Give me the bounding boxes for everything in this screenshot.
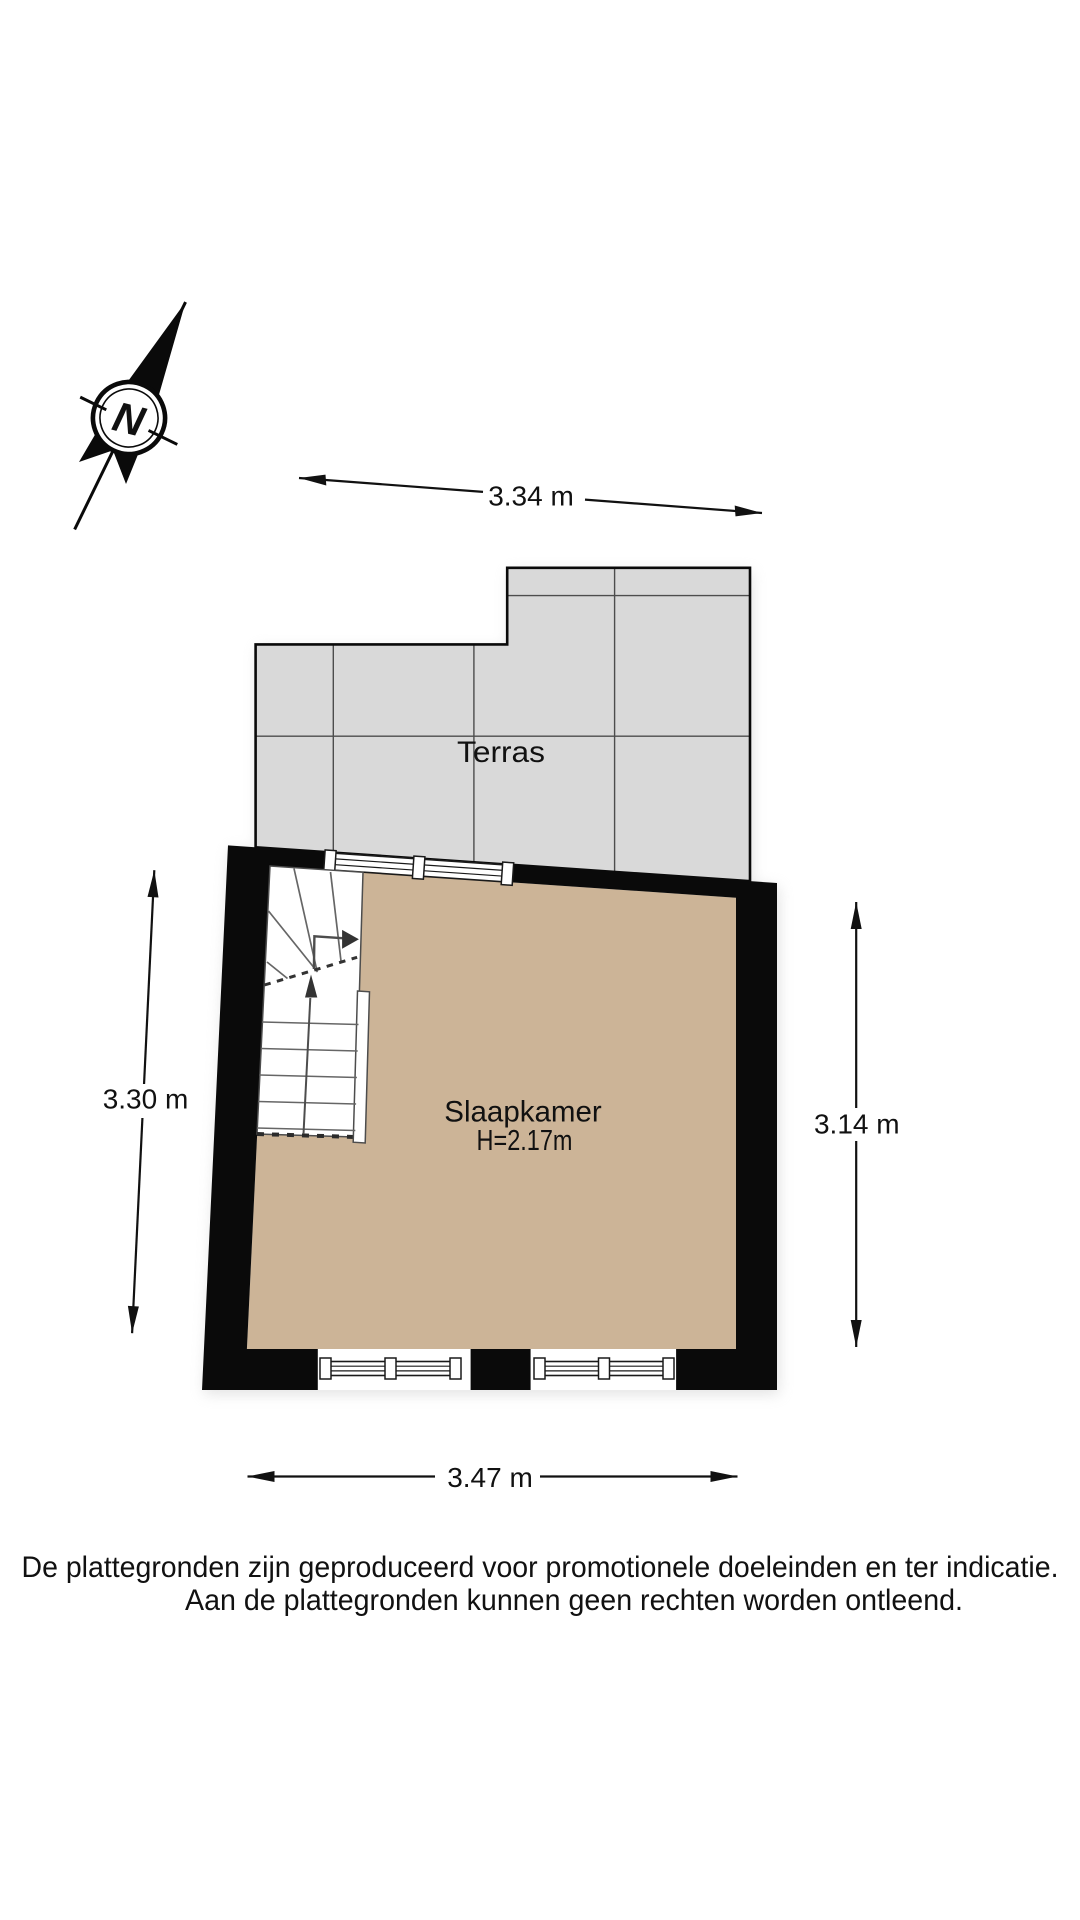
svg-text:Slaapkamer: Slaapkamer bbox=[444, 1096, 602, 1129]
svg-text:3.30 m: 3.30 m bbox=[103, 1084, 189, 1115]
svg-text:Aan de plattegronden kunnen ge: Aan de plattegronden kunnen geen rechten… bbox=[185, 1584, 963, 1617]
svg-text:3.34 m: 3.34 m bbox=[488, 481, 574, 512]
svg-text:3.14 m: 3.14 m bbox=[814, 1109, 900, 1140]
svg-text:3.47 m: 3.47 m bbox=[447, 1462, 533, 1493]
svg-text:H=2.17m: H=2.17m bbox=[477, 1125, 573, 1157]
svg-text:Terras: Terras bbox=[457, 736, 545, 769]
svg-text:De plattegronden zijn geproduc: De plattegronden zijn geproduceerd voor … bbox=[22, 1551, 1059, 1584]
